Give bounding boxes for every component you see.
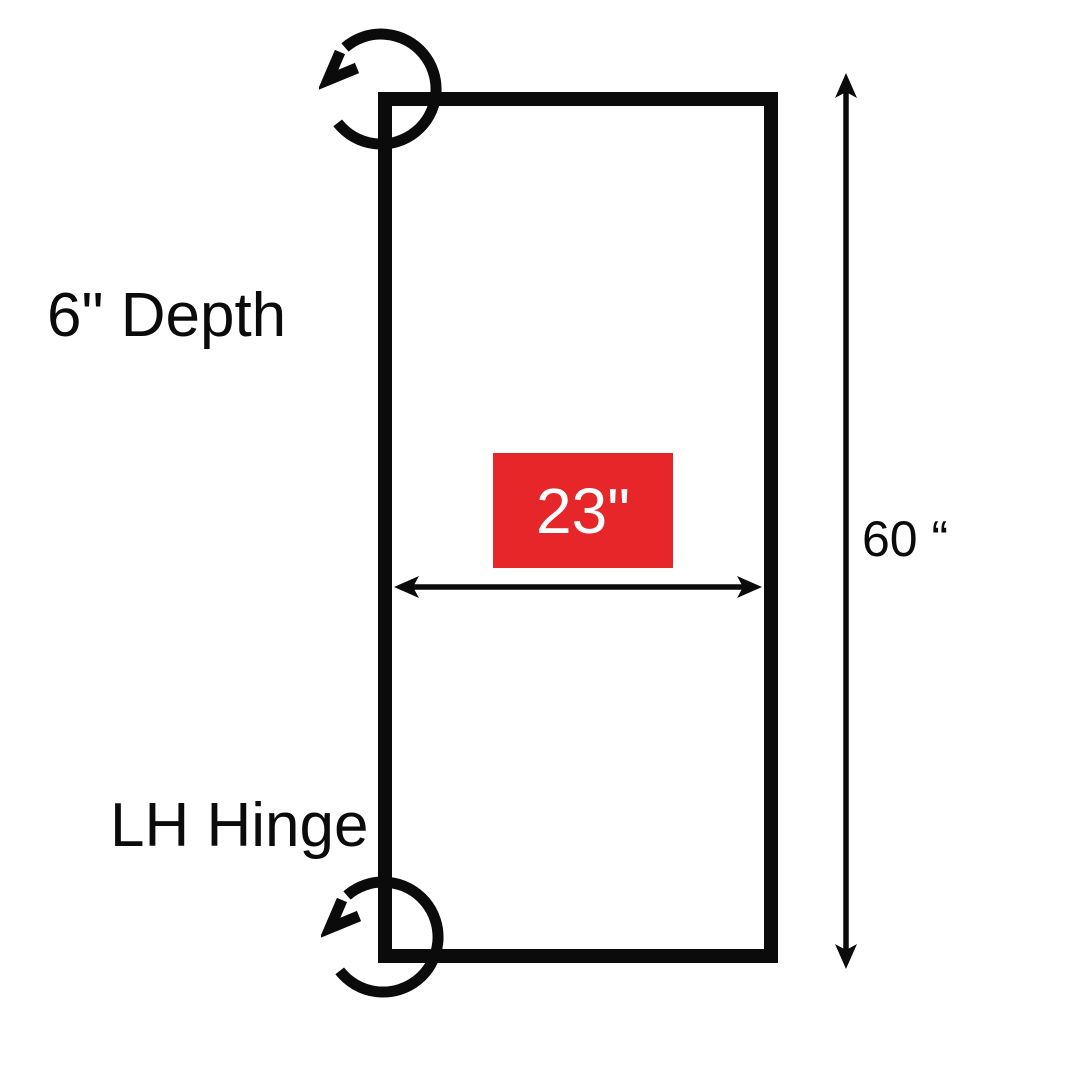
height-dimension-arrow-icon bbox=[828, 71, 864, 971]
depth-label: 6" Depth bbox=[47, 285, 286, 347]
width-value: 23" bbox=[536, 479, 630, 543]
height-label: 60 “ bbox=[862, 514, 948, 564]
width-badge: 23" bbox=[493, 453, 673, 568]
hinge-label: LH Hinge bbox=[110, 795, 368, 857]
rotate-counterclockwise-icon bbox=[321, 875, 445, 999]
width-dimension-arrow-icon bbox=[392, 569, 764, 605]
dimension-diagram: 6" Depth LH Hinge 23" 60 “ bbox=[0, 0, 1080, 1080]
rotate-counterclockwise-icon bbox=[319, 27, 443, 151]
